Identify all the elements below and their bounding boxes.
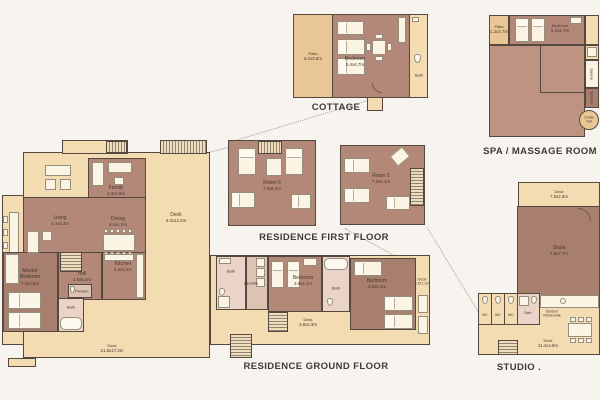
- chair-icon: [122, 229, 126, 233]
- dresser-icon: [303, 258, 317, 266]
- bed-icon: [8, 312, 41, 329]
- label-cedar-tub: Cedar Tub: [582, 116, 596, 125]
- chair-icon: [586, 317, 592, 322]
- label-studio-deck-top: Deck 7.9x2.9m: [550, 189, 568, 200]
- label-cottage-patio: Patio 6.1x3.5m: [304, 51, 322, 62]
- gf-bottom-step: [8, 358, 36, 367]
- table-icon: [568, 323, 592, 337]
- sink-icon: [560, 298, 566, 304]
- label-bedroom-4: Bedroom 3.5x4.4m: [367, 278, 387, 290]
- label-wc: WC: [495, 313, 501, 317]
- washer-icon: [256, 258, 265, 267]
- spa-closet: [585, 15, 599, 45]
- label-family: Family 4.4x2.9m: [107, 185, 125, 197]
- label-deck-east: Deck 4.3x12.2m: [166, 212, 187, 224]
- label-cottage-bath: Bath: [415, 73, 423, 78]
- bathtub-icon: [324, 258, 348, 270]
- bed-icon: [238, 148, 256, 175]
- label-deck-side: Deck 2.6x7.1m: [415, 276, 429, 285]
- stairs-icon: [160, 140, 207, 154]
- bathtub-icon: [60, 317, 82, 330]
- chair-icon: [110, 229, 114, 233]
- first-floor-title: RESIDENCE FIRST FLOOR: [244, 232, 404, 243]
- ground-floor-title: RESIDENCE GROUND FLOOR: [236, 361, 396, 372]
- stairs-icon: [230, 334, 252, 358]
- stairs-icon: [268, 312, 288, 332]
- label-living: Living 4.4x4.3m: [51, 215, 69, 227]
- label-bath-master: Bath: [67, 305, 75, 310]
- bed-icon: [231, 192, 255, 208]
- bed-icon: [531, 18, 545, 42]
- kitchenette-counter-icon: [540, 295, 599, 308]
- bed-icon: [344, 158, 370, 173]
- bed-icon: [337, 21, 364, 35]
- bed-icon: [384, 296, 413, 311]
- label-studio-deck-bottom: Deck 11.4x4.8m: [538, 338, 558, 349]
- stairs-icon: [106, 141, 127, 153]
- kitchen-counter-icon: [136, 254, 144, 298]
- shower-icon: [519, 296, 529, 306]
- chair-icon: [570, 317, 576, 322]
- kitchen-counter-icon: [398, 17, 406, 43]
- chair-icon: [104, 229, 108, 233]
- outdoor-sofa-icon: [45, 165, 71, 176]
- label-deck-mid: Deck 4.8x2.3m: [299, 317, 317, 328]
- label-dining: Dining 4.4x4.2m: [109, 216, 127, 228]
- studio-title: STUDIO .: [479, 362, 559, 373]
- armchair-icon: [42, 231, 52, 241]
- label-bedroom-3: Bedroom 3.9x4.1m: [293, 275, 313, 287]
- kitchen-counter-icon: [104, 254, 134, 261]
- label-spa-bedroom: Bedroom 5.2x2.7m: [551, 23, 569, 34]
- lounge-chair-icon: [418, 316, 428, 334]
- bed-icon: [384, 314, 413, 329]
- chair-icon: [366, 43, 371, 51]
- spa-massage-room: [489, 45, 585, 137]
- label-bath-guest: Bath: [227, 269, 235, 274]
- sofa-icon: [108, 162, 132, 173]
- label-shala: Shala 7.9x7.7m: [550, 245, 568, 257]
- sofa-icon: [92, 162, 104, 186]
- label-room5: Room 5 7.3x6.4m: [372, 173, 390, 185]
- chair-icon: [3, 229, 8, 236]
- outdoor-chair-icon: [45, 179, 56, 190]
- label-laundry: Laundry: [244, 281, 258, 286]
- chair-icon: [116, 229, 120, 233]
- chair-icon: [3, 216, 8, 223]
- outdoor-chair-icon: [60, 179, 71, 190]
- bed-icon: [285, 148, 303, 175]
- label-cottage-bedroom: Bedroom 5.4x4.7m: [345, 56, 365, 68]
- label-wc: WC: [482, 313, 488, 317]
- sink-icon: [219, 258, 231, 264]
- label-deck-main: Deck 21.6x17.2m: [101, 343, 124, 354]
- bed-icon: [8, 292, 41, 309]
- lounge-chair-icon: [418, 295, 428, 313]
- label-shower: Shower: [590, 91, 595, 105]
- label-powder: Powder: [75, 289, 89, 294]
- chair-icon: [570, 338, 576, 343]
- chair-icon: [586, 338, 592, 343]
- cottage-title: COTTAGE: [276, 102, 396, 113]
- bed-icon: [386, 196, 410, 210]
- floorplan-sheet: Patio 6.1x3.5m Bedroom 5.4x4.7m Bath COT…: [0, 0, 600, 400]
- label-room6: Room 6 7.5x6.4m: [263, 180, 281, 192]
- label-sauna: Sauna: [590, 68, 595, 80]
- sofa-icon: [27, 231, 39, 253]
- bed-icon: [337, 39, 365, 55]
- table-icon: [114, 177, 124, 185]
- chair-icon: [578, 338, 584, 343]
- label-wc: WC: [508, 313, 514, 317]
- shower-icon: [218, 296, 230, 308]
- chair-icon: [375, 56, 383, 61]
- chair-icon: [578, 317, 584, 322]
- sink-icon: [412, 17, 419, 22]
- label-hall: Hall 2.6x5.2m: [73, 271, 91, 283]
- bed-icon: [271, 261, 284, 288]
- label-studio-bath: Bath: [524, 311, 531, 315]
- stairs-icon: [498, 340, 518, 355]
- dryer-icon: [256, 268, 265, 277]
- label-kitchen: Kitchen 4.2x2.4m: [114, 261, 132, 273]
- stairs-icon: [410, 168, 424, 206]
- stairs-icon: [258, 141, 282, 154]
- chair-icon: [3, 242, 8, 249]
- interior-wall: [540, 92, 585, 93]
- stairs-icon: [60, 252, 82, 272]
- table-icon: [372, 40, 386, 55]
- dresser-icon: [570, 17, 582, 24]
- label-spa-patio: Patio 1.2x2.7m: [490, 24, 508, 35]
- bed-icon: [344, 188, 370, 203]
- label-kitchenette: Outdoor Kitchenette: [540, 310, 564, 319]
- chair-icon: [387, 43, 392, 51]
- dining-table-icon: [103, 234, 135, 251]
- interior-wall: [540, 45, 541, 93]
- chair-icon: [128, 229, 132, 233]
- label-bath-shared: Bath: [332, 286, 340, 291]
- sofa-icon: [266, 158, 282, 176]
- bed-icon: [291, 194, 311, 209]
- bed-icon: [354, 261, 382, 276]
- spa-title: SPA / MASSAGE ROOM: [481, 146, 599, 157]
- bed-icon: [515, 18, 529, 42]
- label-master-bedroom: Master Bedroom 7.4x4.8m: [17, 268, 44, 286]
- sink-icon: [587, 47, 597, 57]
- chair-icon: [375, 34, 383, 39]
